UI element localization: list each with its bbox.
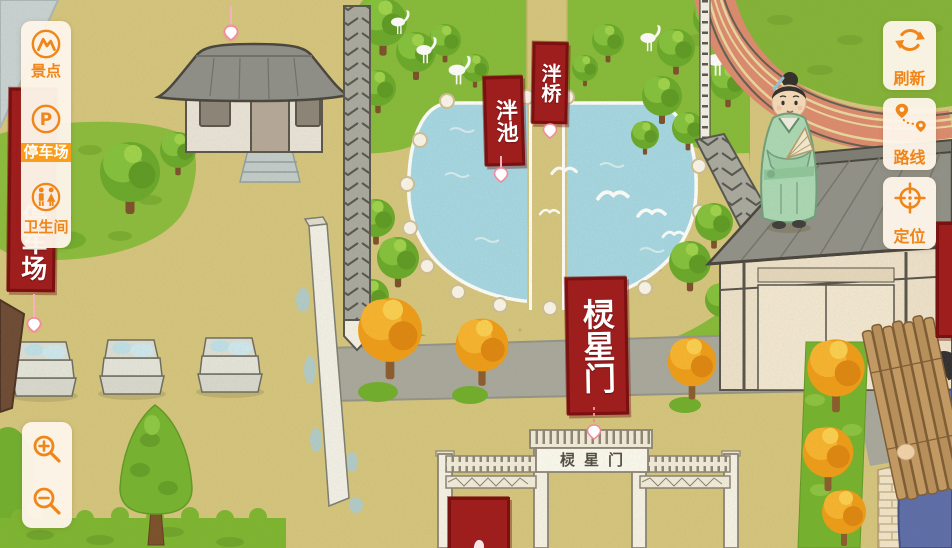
refresh-icon	[892, 22, 928, 62]
locate-icon	[892, 180, 928, 220]
parking-icon[interactable]: P	[30, 103, 62, 139]
map-pin-pan-bridge[interactable]	[540, 118, 560, 144]
map-pin-house[interactable]	[221, 6, 241, 46]
locate-button[interactable]: 定位	[883, 177, 936, 249]
sidebar-panel: 景点 P 停车场 卫生间	[21, 21, 71, 248]
poi-banner-pan-bridge-label: 泮桥	[538, 63, 563, 103]
poi-banner-lingxing-gate[interactable]: 棂星门	[565, 276, 629, 415]
poi-banner-lingxing-gate-label: 棂星门	[578, 298, 616, 395]
svg-text:P: P	[40, 109, 52, 129]
zoom-in-magnifier-icon	[30, 451, 64, 470]
scenic-spots-icon[interactable]	[30, 28, 62, 64]
poi-banner-pan-pond-label: 泮池	[490, 99, 518, 144]
route-button[interactable]: 路线	[883, 98, 936, 170]
restroom-icon[interactable]	[30, 181, 62, 217]
banner-partial-glyph	[472, 539, 485, 548]
sidebar-item-restroom[interactable]: 卫生间	[21, 218, 71, 237]
map-pin-lingxing-gate[interactable]	[584, 407, 604, 445]
poi-banner-pan-bridge[interactable]: 泮桥	[531, 42, 568, 125]
poi-banner-pan-pond[interactable]: 泮池	[483, 75, 525, 166]
sidebar-item-parking[interactable]: 停车场	[21, 143, 71, 162]
route-icon	[892, 101, 928, 141]
zoom-out-button[interactable]	[30, 484, 64, 518]
refresh-button-label: 刷新	[893, 65, 925, 89]
map-pin-pan-pond[interactable]	[491, 156, 511, 188]
sidebar-item-scenic-spots[interactable]: 景点	[21, 62, 71, 81]
map-illustration[interactable]: 棂星门	[0, 0, 952, 548]
poi-banner-partial-bottom[interactable]	[448, 497, 510, 548]
refresh-button[interactable]: 刷新	[883, 21, 936, 90]
zoom-out-magnifier-icon	[30, 503, 64, 522]
map-pin-parking[interactable]	[24, 294, 44, 338]
poi-banner-partial-right[interactable]	[936, 222, 952, 338]
zoom-in-button[interactable]	[30, 432, 64, 466]
locate-button-label: 定位	[893, 223, 925, 247]
paper-grain-overlay	[0, 0, 952, 548]
scenic-map-app: 棂星门 停车场 泮池 泮桥 棂星门 景点 P 停车场 卫生间	[0, 0, 952, 548]
route-button-label: 路线	[893, 144, 925, 168]
zoom-controls-panel	[22, 422, 72, 528]
